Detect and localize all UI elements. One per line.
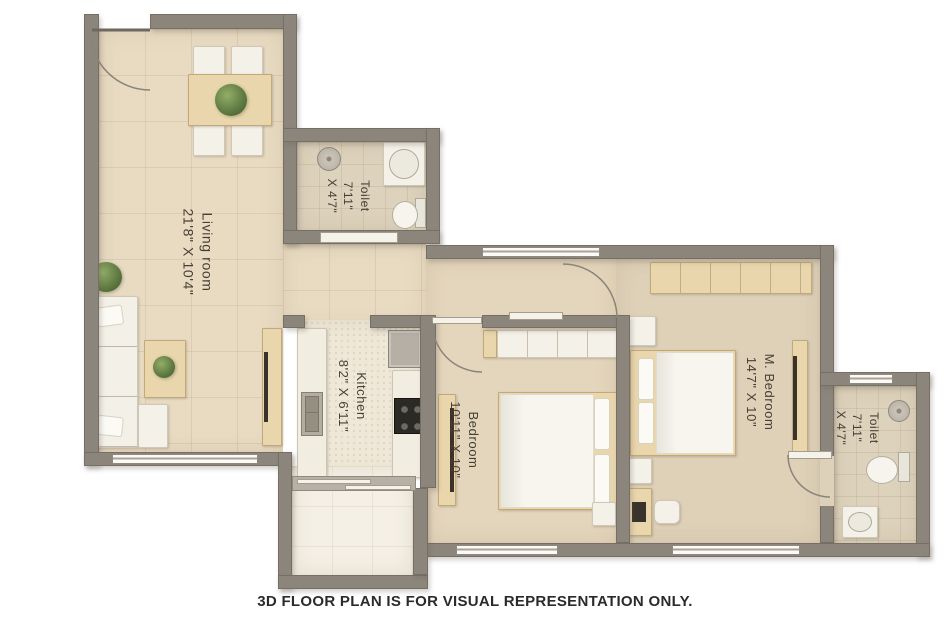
sliding-door-panel — [297, 479, 371, 484]
door-leaf-toilet-top — [320, 232, 398, 243]
wall-kitchen-top-a — [283, 315, 305, 328]
master-wardrobe — [650, 262, 812, 294]
room-dims: 14'7" X 10" — [742, 354, 760, 431]
toilet-bowl-icon — [866, 456, 898, 484]
room-dims: 8'2" X 6'11" — [334, 360, 352, 432]
toilet-tank — [898, 452, 910, 482]
toilet-top-label: Toilet 7'11" X 4'7" — [323, 179, 373, 214]
dining-chair — [193, 46, 225, 76]
master-toilet-door-gap — [820, 456, 834, 506]
floor-plan-3d: Living room 21'8" X 10'4" Toilet 7'11" X… — [0, 0, 950, 625]
bedroom-pillow — [594, 454, 610, 506]
wash-basin-icon — [848, 512, 872, 532]
window-master — [672, 545, 800, 555]
dining-chair — [231, 46, 263, 76]
room-dims: 10'11" X 10" — [446, 401, 464, 478]
stove-icon — [394, 398, 422, 434]
master-pillow — [638, 402, 654, 444]
room-name: Toilet — [356, 179, 373, 214]
wall-toilet-top — [283, 128, 440, 142]
room-dims: 7'11" — [849, 411, 866, 446]
door-leaf-hallway — [509, 312, 563, 320]
master-nightstand — [628, 458, 652, 484]
disclaimer-caption: 3D FLOOR PLAN IS FOR VISUAL REPRESENTATI… — [0, 593, 950, 610]
wall-toilet2-right — [916, 372, 930, 557]
desk-stool — [654, 500, 680, 524]
bedroom-wardrobe — [497, 330, 617, 358]
sofa-chaise — [138, 404, 168, 448]
room-name: Bedroom — [464, 401, 482, 478]
toilet-right-label: Toilet 7'11" X 4'7" — [832, 411, 882, 446]
sofa-pillow — [96, 304, 125, 327]
window-bedroom — [456, 545, 558, 555]
window-living — [112, 454, 258, 464]
tv-screen-icon — [793, 356, 797, 440]
bedroom-duvet — [500, 394, 594, 508]
kitchen-label: Kitchen 8'2" X 6'11" — [334, 360, 370, 432]
bedroom-label: Bedroom 10'11" X 10" — [446, 401, 482, 478]
room-dims: X 4'7" — [832, 411, 849, 446]
wall-balcony-bottom — [278, 575, 428, 589]
master-duvet — [656, 352, 734, 454]
wall-kitchen-right — [420, 315, 436, 488]
wall-between-bedrooms — [616, 315, 630, 543]
room-name: Toilet — [865, 411, 882, 446]
master-bedroom-label: M. Bedroom 14'7" X 10" — [742, 354, 778, 431]
master-nightstand — [628, 316, 656, 346]
fridge-icon — [388, 330, 422, 368]
door-leaf-master-toilet — [788, 451, 832, 459]
wall-toilet-right — [426, 128, 440, 244]
window-hallway — [482, 247, 600, 257]
toilet-bowl-icon — [392, 201, 418, 229]
table-plant-icon — [215, 84, 247, 116]
wash-basin-icon — [389, 149, 419, 179]
bedroom-pillow — [594, 398, 610, 450]
laptop-icon — [632, 502, 646, 522]
wardrobe-side-panel — [483, 330, 497, 358]
bedroom-nightstand — [592, 502, 616, 526]
shower-head-icon — [317, 147, 341, 171]
balcony-slider-frame — [292, 476, 416, 491]
wall-top-living — [150, 14, 297, 29]
room-dims: X 4'7" — [323, 179, 340, 214]
dining-chair — [193, 124, 225, 156]
room-name: M. Bedroom — [760, 354, 778, 431]
wall-balcony-right — [413, 488, 428, 575]
wall-left — [84, 14, 99, 466]
window-toilet-right — [849, 374, 893, 384]
room-name: Living room — [197, 209, 216, 296]
living-room-label: Living room 21'8" X 10'4" — [178, 209, 217, 296]
room-dims: 7'11" — [340, 179, 357, 214]
kitchen-sink-icon — [301, 392, 323, 436]
room-name: Kitchen — [352, 360, 370, 432]
wall-kitchen-top-b — [370, 315, 425, 328]
door-leaf-bedroom — [432, 317, 482, 324]
sofa-pillow — [96, 415, 124, 438]
sliding-door-panel — [345, 485, 411, 490]
wall-balcony-left — [278, 452, 292, 589]
tv-screen-icon — [264, 352, 268, 422]
master-pillow — [638, 358, 654, 400]
room-dims: 21'8" X 10'4" — [178, 209, 197, 296]
shower-head-icon — [888, 400, 910, 422]
coffee-table-plant-icon — [153, 356, 175, 378]
dining-chair — [231, 124, 263, 156]
